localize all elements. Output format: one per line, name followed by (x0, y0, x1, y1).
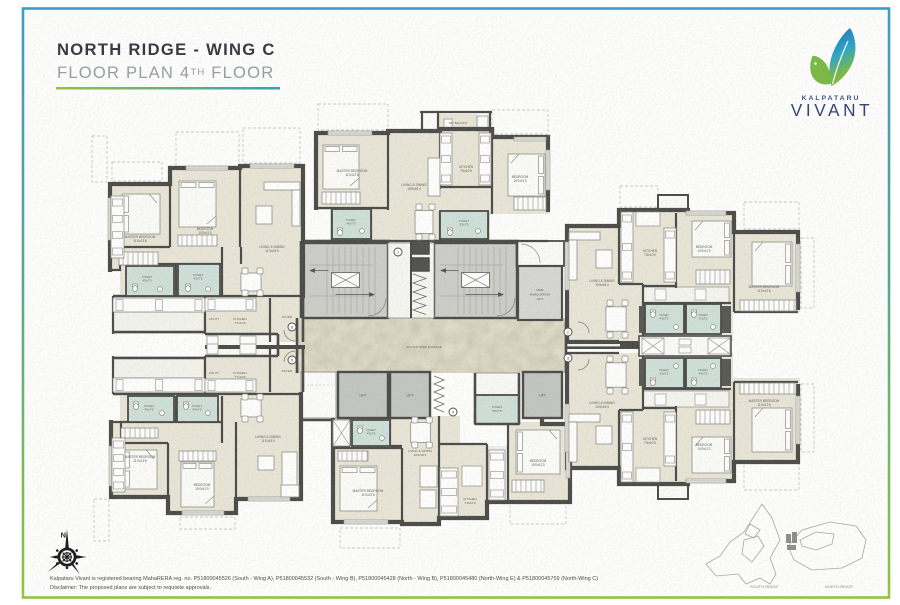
svg-text:11'0x13'6: 11'0x13'6 (133, 459, 146, 463)
svg-text:7'6x10'0: 7'6x10'0 (644, 253, 656, 257)
svg-text:7'7x10'6: 7'7x10'6 (235, 321, 246, 325)
svg-text:11'0x12'6: 11'0x12'6 (757, 403, 770, 407)
svg-text:11'0x13'6: 11'0x13'6 (133, 239, 146, 243)
svg-text:NORTH-RIDGE: NORTH-RIDGE (825, 584, 853, 589)
svg-text:7'6x10'0: 7'6x10'0 (644, 441, 656, 445)
svg-text:SOUTH-RIDGE: SOUTH-RIDGE (750, 584, 778, 589)
svg-text:10'0x11'0: 10'0x11'0 (697, 447, 710, 451)
svg-text:10'6x16'4: 10'6x16'4 (595, 405, 609, 409)
svg-text:10'0x11'0: 10'0x11'0 (697, 249, 710, 253)
svg-text:4TH FLR WIDE PASSAGE: 4TH FLR WIDE PASSAGE (406, 345, 442, 349)
svg-text:7'6x10'0: 7'6x10'0 (460, 169, 472, 173)
svg-text:10'6x16'4: 10'6x16'4 (407, 187, 421, 191)
svg-text:11'0x19'4: 11'0x19'4 (265, 249, 278, 253)
svg-text:DRY BALCONY: DRY BALCONY (449, 121, 468, 125)
svg-text:11'0x12'6: 11'0x12'6 (361, 493, 374, 497)
svg-text:11'0x19'4: 11'0x19'4 (261, 439, 274, 443)
svg-text:FOYER: FOYER (282, 369, 293, 373)
svg-text:UTILITY: UTILITY (209, 371, 220, 375)
svg-text:Kalpataru Vivant is registered: Kalpataru Vivant is registered bearing M… (50, 576, 598, 582)
svg-text:7'6x10'0: 7'6x10'0 (465, 501, 476, 505)
svg-text:N: N (61, 531, 66, 540)
svg-text:11'0x12'6: 11'0x12'6 (345, 173, 358, 177)
svg-text:10'6x16'4: 10'6x16'4 (414, 453, 427, 457)
svg-text:11'0x12'6: 11'0x12'6 (757, 289, 770, 293)
svg-text:UTILITY: UTILITY (209, 317, 220, 321)
svg-text:10'0x11'0: 10'0x11'0 (513, 179, 526, 183)
svg-text:Disclaimer: The proposed plans: Disclaimer: The proposed plans are subje… (50, 585, 211, 591)
svg-text:FOYER: FOYER (282, 315, 293, 319)
svg-text:10'6x16'4: 10'6x16'4 (595, 283, 609, 287)
svg-text:10'0x11'0: 10'0x11'0 (531, 463, 544, 467)
svg-text:10'0x11'0: 10'0x11'0 (195, 487, 208, 491)
svg-text:10'0x11'0: 10'0x11'0 (198, 231, 211, 235)
svg-text:7'7x10'6: 7'7x10'6 (235, 375, 246, 379)
